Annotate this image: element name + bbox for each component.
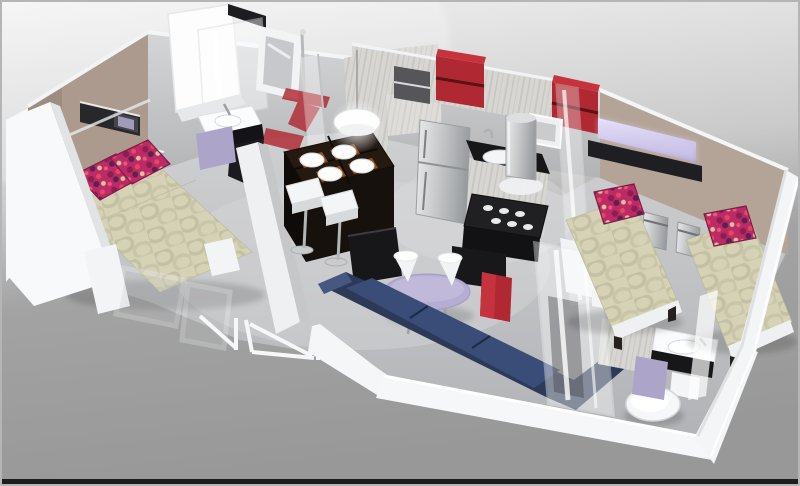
bathroom-window xyxy=(256,26,302,100)
fridge xyxy=(416,120,470,224)
window-frame xyxy=(116,268,184,326)
floorplan-render xyxy=(0,0,800,486)
red-shelf-unit-1 xyxy=(436,49,486,108)
floorplan-svg xyxy=(0,0,800,486)
red-cabinet xyxy=(480,272,512,322)
shower-cabin xyxy=(168,4,268,122)
water-heater xyxy=(499,113,543,195)
bed-pillow xyxy=(704,206,756,246)
